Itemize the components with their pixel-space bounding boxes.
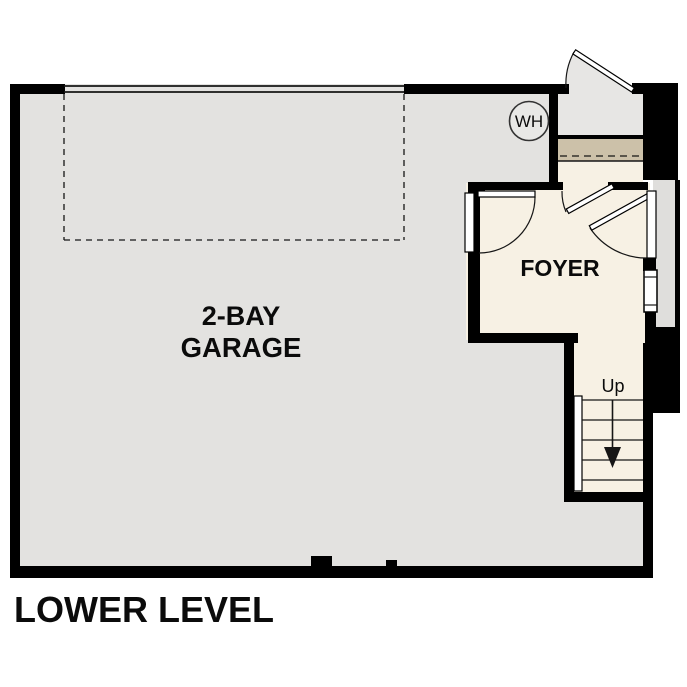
stairs-up-label: Up [601,376,624,396]
garage-foyer-door-leaf [478,191,535,197]
entry-stoop [558,88,643,139]
wall-block-top-right [643,83,678,180]
wall-segment-below-window [645,312,656,328]
wall-jamb-east-opening [643,258,656,271]
garage-label-line1: 2-BAY [202,301,281,331]
wall-segment-foyer-south [468,333,578,343]
wall-post-bottom-1 [311,556,332,566]
threshold-top-edge [558,135,643,139]
water-heater-label: WH [515,112,543,131]
foyer-east-doorway-casing [647,191,656,258]
east-window [644,270,657,312]
garage-label-line2: GARAGE [181,332,302,363]
stair-handrail [574,396,582,491]
entry-threshold [558,139,643,161]
wall-segment-right-exterior [675,180,680,330]
wall-segment-left-exterior [10,84,20,578]
foyer-label: FOYER [520,255,600,281]
floor-plan-page: WH Up 2-BAY GARAGE FOYER LOWER LEVEL [0,0,687,687]
wall-segment-top-left [10,84,65,94]
window-frame [644,270,657,312]
wall-segment-stair-west [564,336,574,502]
garage-foyer-doorway-casing [465,193,474,252]
wall-segment-stair-south [564,492,653,502]
wall-segment-top-middle [404,84,569,94]
floor-plan-drawing: WH Up 2-BAY GARAGE FOYER LOWER LEVEL [0,0,687,687]
wall-segment-bottom-exterior [10,566,653,578]
wall-block-right-middle [645,327,680,413]
wall-post-bottom-2 [386,560,397,566]
wall-segment-garage-entry [549,84,558,190]
floor-title: LOWER LEVEL [14,589,274,630]
